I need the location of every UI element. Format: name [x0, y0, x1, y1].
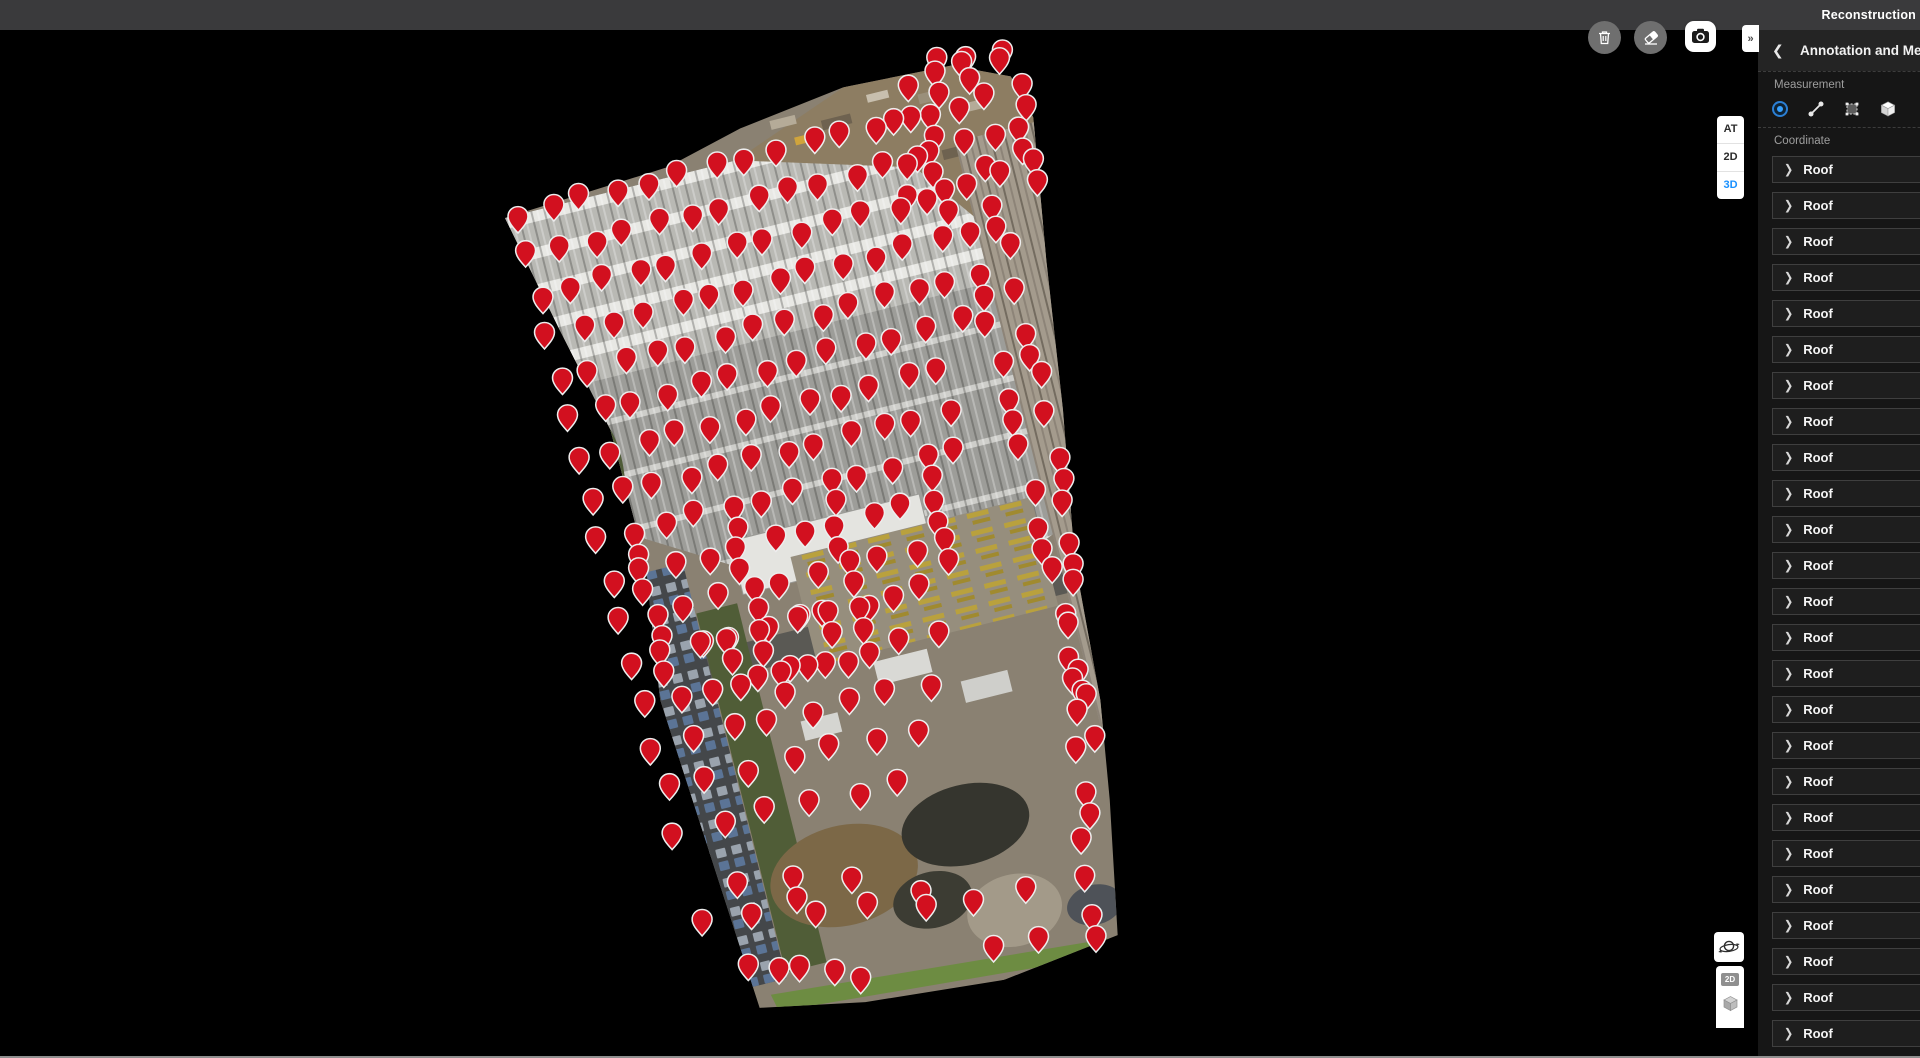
coordinate-item-11[interactable]: ❯Roof: [1772, 552, 1920, 579]
expand-chevron-icon: ❯: [1784, 774, 1793, 789]
coordinate-item-label: Roof: [1803, 378, 1833, 393]
coordinate-item-label: Roof: [1803, 414, 1833, 429]
coordinate-item-label: Roof: [1803, 306, 1833, 321]
coordinate-item-24[interactable]: ❯Roof: [1772, 1020, 1920, 1047]
map-pin[interactable]: [660, 774, 680, 800]
layer-switch-panel: 2D: [1716, 966, 1744, 1028]
expand-chevron-icon: ❯: [1784, 234, 1793, 249]
back-chevron-icon[interactable]: ❮: [1772, 30, 1784, 71]
coordinate-item-13[interactable]: ❯Roof: [1772, 624, 1920, 651]
map-pin[interactable]: [635, 691, 655, 717]
sidebar-header: ❮ Annotation and Measurement: [1758, 30, 1920, 71]
coordinate-item-1[interactable]: ❯Roof: [1772, 192, 1920, 219]
coordinate-section-label: Coordinate: [1758, 128, 1920, 149]
coordinate-item-label: Roof: [1803, 774, 1833, 789]
volume-tool-button[interactable]: [1876, 99, 1900, 119]
expand-chevron-icon: ❯: [1784, 918, 1793, 933]
expand-chevron-icon: ❯: [1784, 306, 1793, 321]
expand-chevron-icon: ❯: [1784, 162, 1793, 177]
coordinate-item-4[interactable]: ❯Roof: [1772, 300, 1920, 327]
coordinate-item-label: Roof: [1803, 270, 1833, 285]
expand-chevron-icon: ❯: [1784, 522, 1793, 537]
camera-icon: [1690, 26, 1711, 47]
expand-chevron-icon: ❯: [1784, 414, 1793, 429]
top-bar: Reconstruction: [0, 0, 1920, 30]
coordinate-item-15[interactable]: ❯Roof: [1772, 696, 1920, 723]
map-pin[interactable]: [692, 909, 712, 935]
coordinate-item-label: Roof: [1803, 702, 1833, 717]
coordinate-item-23[interactable]: ❯Roof: [1772, 984, 1920, 1011]
coordinate-item-14[interactable]: ❯Roof: [1772, 660, 1920, 687]
map-pin[interactable]: [586, 527, 606, 553]
screenshot-button[interactable]: [1685, 21, 1716, 52]
expand-chevron-icon: ❯: [1784, 954, 1793, 969]
coordinate-item-12[interactable]: ❯Roof: [1772, 588, 1920, 615]
map-pin[interactable]: [608, 607, 628, 633]
coordinate-point-icon: [1771, 100, 1789, 118]
coordinate-item-18[interactable]: ❯Roof: [1772, 804, 1920, 831]
coordinate-item-10[interactable]: ❯Roof: [1772, 516, 1920, 543]
coordinate-item-8[interactable]: ❯Roof: [1772, 444, 1920, 471]
coordinate-item-label: Roof: [1803, 594, 1833, 609]
map-pin[interactable]: [662, 823, 682, 849]
layer-2d-button[interactable]: 2D: [1721, 973, 1739, 986]
eraser-button[interactable]: [1634, 21, 1667, 54]
expand-chevron-icon: ❯: [1784, 1026, 1793, 1041]
map-pin[interactable]: [604, 571, 624, 597]
expand-chevron-icon: ❯: [1784, 342, 1793, 357]
coordinate-item-label: Roof: [1803, 522, 1833, 537]
app-window: Reconstruction: [0, 0, 1920, 1058]
map-pin[interactable]: [535, 322, 555, 348]
expand-chevron-icon: ❯: [1784, 558, 1793, 573]
coordinate-item-21[interactable]: ❯Roof: [1772, 912, 1920, 939]
coordinate-item-19[interactable]: ❯Roof: [1772, 840, 1920, 867]
view-mode-toggle: AT2D3D: [1717, 116, 1744, 199]
volume-cube-icon: [1879, 100, 1897, 118]
coordinate-item-17[interactable]: ❯Roof: [1772, 768, 1920, 795]
sidebar-title: Annotation and Measurement: [1800, 30, 1920, 71]
coordinate-item-label: Roof: [1803, 162, 1833, 177]
expand-chevron-icon: ❯: [1784, 594, 1793, 609]
map-pin[interactable]: [558, 405, 578, 431]
point-tool-button[interactable]: [1768, 99, 1792, 119]
delete-button[interactable]: [1588, 21, 1621, 54]
measurement-section-label: Measurement: [1758, 72, 1920, 93]
orbit-globe-icon: [1718, 936, 1740, 958]
view-mode-3d[interactable]: 3D: [1717, 172, 1744, 199]
coordinate-item-5[interactable]: ❯Roof: [1772, 336, 1920, 363]
coordinate-item-2[interactable]: ❯Roof: [1772, 228, 1920, 255]
expand-chevron-icon: ❯: [1784, 738, 1793, 753]
map-viewport[interactable]: [0, 30, 1920, 1058]
coordinate-item-label: Roof: [1803, 738, 1833, 753]
expand-chevron-icon: ❯: [1784, 270, 1793, 285]
expand-chevron-icon: ❯: [1784, 378, 1793, 393]
coordinate-item-label: Roof: [1803, 558, 1833, 573]
coordinate-item-label: Roof: [1803, 990, 1833, 1005]
expand-chevron-icon: ❯: [1784, 450, 1793, 465]
map-pin[interactable]: [622, 653, 642, 679]
coordinate-item-label: Roof: [1803, 450, 1833, 465]
eraser-icon: [1642, 29, 1660, 47]
view-mode-2d[interactable]: 2D: [1717, 144, 1744, 172]
chevrons-right-icon: »: [1747, 33, 1753, 45]
coordinate-item-label: Roof: [1803, 666, 1833, 681]
map-pin[interactable]: [990, 48, 1010, 74]
expand-chevron-icon: ❯: [1784, 990, 1793, 1005]
area-tool-button[interactable]: [1840, 99, 1864, 119]
coordinate-item-label: Roof: [1803, 486, 1833, 501]
map-pin[interactable]: [583, 488, 603, 514]
coordinate-item-label: Roof: [1803, 954, 1833, 969]
expand-chevron-icon: ❯: [1784, 702, 1793, 717]
expand-chevron-icon: ❯: [1784, 846, 1793, 861]
coordinate-item-22[interactable]: ❯Roof: [1772, 948, 1920, 975]
coordinate-item-16[interactable]: ❯Roof: [1772, 732, 1920, 759]
map-pin[interactable]: [553, 368, 573, 394]
expand-chevron-icon: ❯: [1784, 810, 1793, 825]
coordinate-item-20[interactable]: ❯Roof: [1772, 876, 1920, 903]
coordinate-list: ❯Roof❯Roof❯Roof❯Roof❯Roof❯Roof❯Roof❯Roof…: [1758, 156, 1920, 1058]
sidebar-expand-button[interactable]: »: [1742, 25, 1759, 52]
coordinate-item-label: Roof: [1803, 882, 1833, 897]
map-pin[interactable]: [640, 739, 660, 765]
trash-icon: [1596, 29, 1613, 46]
map-pin[interactable]: [569, 447, 589, 473]
annotation-sidebar: ❮ Annotation and Measurement Measurement: [1758, 30, 1920, 1058]
layer-3d-cube-button[interactable]: [1722, 995, 1739, 1012]
coordinate-item-3[interactable]: ❯Roof: [1772, 264, 1920, 291]
measurement-tools: [1758, 93, 1920, 127]
distance-tool-button[interactable]: [1804, 99, 1828, 119]
map-pin[interactable]: [1086, 926, 1106, 952]
coordinate-item-label: Roof: [1803, 342, 1833, 357]
coordinate-item-9[interactable]: ❯Roof: [1772, 480, 1920, 507]
area-icon: [1843, 100, 1861, 118]
coordinate-item-label: Roof: [1803, 810, 1833, 825]
expand-chevron-icon: ❯: [1784, 486, 1793, 501]
reconstruction-tab[interactable]: Reconstruction: [1822, 0, 1916, 30]
coordinate-item-label: Roof: [1803, 846, 1833, 861]
view-mode-at[interactable]: AT: [1717, 116, 1744, 144]
orbit-view-button[interactable]: [1714, 932, 1744, 962]
coordinate-item-label: Roof: [1803, 918, 1833, 933]
coordinate-item-label: Roof: [1803, 234, 1833, 249]
reconstruction-3d-view[interactable]: [0, 30, 1920, 1058]
expand-chevron-icon: ❯: [1784, 198, 1793, 213]
expand-chevron-icon: ❯: [1784, 882, 1793, 897]
coordinate-item-0[interactable]: ❯Roof: [1772, 156, 1920, 183]
coordinate-item-label: Roof: [1803, 1026, 1833, 1041]
map-pin[interactable]: [600, 442, 620, 468]
distance-icon: [1807, 100, 1825, 118]
expand-chevron-icon: ❯: [1784, 666, 1793, 681]
expand-chevron-icon: ❯: [1784, 630, 1793, 645]
coordinate-item-label: Roof: [1803, 198, 1833, 213]
coordinate-item-label: Roof: [1803, 630, 1833, 645]
coordinate-item-7[interactable]: ❯Roof: [1772, 408, 1920, 435]
coordinate-item-6[interactable]: ❯Roof: [1772, 372, 1920, 399]
